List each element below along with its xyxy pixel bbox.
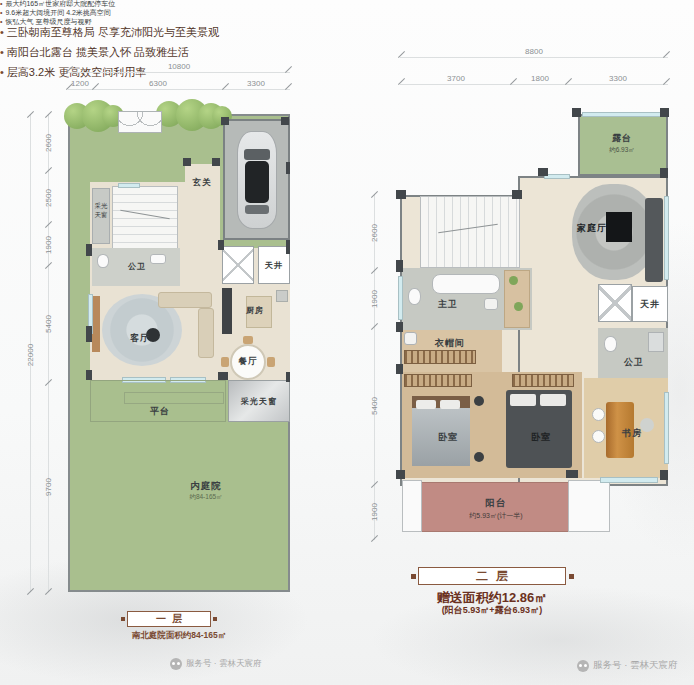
wall-segment (660, 108, 669, 117)
wardrobe-rack (404, 374, 472, 387)
wall-segment (286, 162, 290, 174)
tick (45, 221, 52, 228)
room-label-bedroom-1: 卧室 (438, 431, 458, 444)
f2-title-box: 二层 (418, 567, 566, 585)
tick (285, 83, 292, 90)
pillow (416, 400, 436, 409)
bullet-text: 南阳台北露台 揽美景入怀 品致雅生活 (7, 46, 189, 60)
dim-label: 3300 (609, 74, 627, 83)
room-label-dining: 餐厅 (239, 356, 258, 368)
title-box-dot (569, 574, 574, 579)
window (664, 392, 669, 464)
room-label-bedroom-2: 卧室 (531, 431, 551, 444)
wall-segment (396, 322, 403, 332)
f1-subtitle: 南北庭院面积约84-165㎡ (68, 630, 290, 642)
side-table (474, 452, 484, 462)
f2-dim-height-segments: 2600 1900 5400 1900 (374, 195, 375, 540)
dining-chair (221, 357, 229, 367)
wall-segment (566, 470, 578, 478)
f2-dim-width-segments: 3700 1800 3300 (400, 84, 668, 85)
f1-watermark: 服务号 · 雲林天宸府 (170, 658, 262, 670)
room-label-lightwell-f2: 天井 (640, 298, 660, 311)
wardrobe-rack (404, 350, 476, 364)
bullet-text: 三卧朝南至尊格局 尽享充沛阳光与至美景观 (7, 26, 219, 40)
balcony-area-label: 约5.93㎡(计一半) (469, 511, 522, 521)
tv-icon (606, 212, 632, 242)
dim-label: 8800 (525, 47, 543, 56)
window (582, 112, 664, 117)
chair (640, 418, 654, 432)
window (664, 196, 669, 280)
bullet-item: •9.6米超大阔境开间 4.2米挑高空间 (0, 9, 694, 18)
pillow (540, 394, 566, 406)
bullet-item: •最大约165㎡世家府邸大院配停车位 (0, 0, 694, 9)
planting-bed (124, 392, 224, 404)
balcony-pillar (568, 480, 610, 532)
wall-segment (396, 190, 406, 199)
sofa (198, 308, 214, 358)
room-label-entry: 玄关 (193, 177, 212, 189)
f1-lift-shaft (222, 246, 254, 284)
tick (27, 588, 34, 595)
tick (371, 191, 378, 198)
pillow (510, 394, 536, 406)
kitchen-counter (222, 288, 232, 334)
dim-label: 5400 (370, 397, 379, 415)
sofa (645, 198, 663, 282)
watermark-text: 服务号 · 雲林天宸府 (186, 658, 262, 670)
tick (45, 379, 52, 386)
f2-dim-total-width: 8800 (400, 57, 668, 58)
tick (27, 111, 34, 118)
tick (45, 588, 52, 595)
bullet-dot: • (0, 66, 4, 80)
bullet-dot: • (0, 18, 2, 27)
bullet-dot: • (0, 26, 4, 40)
f1-dim-height-segments: 2600 2500 1900 5400 9700 (48, 115, 49, 592)
tv-cabinet (92, 296, 100, 352)
title-box-dot (213, 617, 217, 621)
wall-segment (512, 190, 522, 199)
wall-segment (218, 372, 228, 380)
sofa (158, 292, 212, 308)
f1-title-box: 一层 (127, 611, 211, 627)
dim-label: 5400 (44, 315, 53, 333)
tick (371, 323, 378, 330)
wall-segment (396, 470, 405, 479)
f1-bullet-list: •最大约165㎡世家府邸大院配停车位 •9.6米超大阔境开间 4.2米挑高空间 … (0, 0, 694, 26)
room-label-skylight-1: 采光 (95, 202, 108, 211)
dim-label: 2500 (44, 189, 53, 207)
dim-label: 22000 (26, 344, 35, 366)
tick (371, 535, 378, 542)
wall-segment (286, 372, 290, 382)
room-label-closet: 衣帽间 (435, 337, 465, 350)
f2-lift-shaft (598, 284, 632, 322)
wall-segment (660, 470, 668, 480)
tick (92, 83, 99, 90)
wall-segment (281, 117, 289, 125)
toilet-icon (408, 288, 421, 305)
bullet-dot: • (0, 0, 2, 9)
shower-icon (648, 332, 664, 352)
bathtub-icon (432, 274, 500, 294)
dim-label: 3300 (247, 79, 265, 88)
car-windshield (244, 149, 270, 160)
dining-chair (243, 336, 253, 344)
f1-dim-total-width: 10800 (68, 72, 290, 73)
car-rear-window (245, 205, 269, 214)
room-label-guest-bath: 公卫 (624, 356, 644, 369)
toilet-icon (604, 336, 617, 352)
courtyard-area-label: 约84-165㎡ (189, 493, 222, 502)
wall-segment (86, 326, 92, 342)
tick (371, 267, 378, 274)
dim-label: 6300 (149, 79, 167, 88)
wall-segment (660, 168, 668, 178)
window (118, 183, 140, 188)
room-label-platform: 平台 (150, 405, 170, 418)
bullet-text: 9.6米超大阔境开间 4.2米挑高空间 (5, 9, 110, 18)
dim-label: 10800 (168, 62, 190, 71)
room-label-bath: 公卫 (128, 261, 146, 272)
wechat-icon (170, 658, 182, 670)
plant-icon (509, 276, 518, 285)
terrace-area-label: 约6.93㎡ (609, 146, 635, 155)
bullet-item: •三卧朝南至尊格局 尽享充沛阳光与至美景观 (0, 26, 694, 40)
dim-label: 1900 (370, 290, 379, 308)
wall-segment (396, 364, 403, 374)
side-table (474, 396, 484, 406)
tick (45, 167, 52, 174)
bullet-dot: • (0, 46, 4, 60)
chair (592, 408, 605, 421)
washer-icon (404, 332, 417, 345)
f1-title: 一层 (156, 613, 188, 624)
room-label-study: 书房 (622, 427, 642, 440)
room-label-kitchen: 厨房 (246, 305, 264, 316)
wardrobe-rack (512, 374, 574, 387)
room-label-lightwell: 天井 (265, 260, 283, 271)
wall-segment (572, 108, 581, 117)
pillow (440, 400, 460, 409)
wall-segment (183, 158, 191, 166)
tick (371, 481, 378, 488)
dim-label: 9700 (44, 478, 53, 496)
room-label-master-bath: 主卫 (438, 298, 458, 311)
bullet-item: •恢弘大气 至尊级尺度与视野 (0, 18, 694, 27)
wall-segment (86, 244, 92, 256)
room-label-skylight-south: 采光天窗 (241, 396, 277, 407)
balcony-pillar (402, 480, 422, 532)
chair (592, 430, 605, 443)
f2-watermark: 服务号 · 雲林天宸府 (577, 659, 677, 672)
room-label-skylight-2: 天窗 (95, 211, 108, 220)
entrance-gate (118, 111, 162, 133)
wall-segment (538, 168, 548, 176)
wall-segment (396, 260, 403, 272)
title-box-dot (411, 574, 416, 579)
dim-label: 2600 (44, 134, 53, 152)
f2-gift-note: (阳台5.93㎡+露台6.93㎡) (380, 604, 604, 617)
f1-dim-width-segments: 1200 6300 3300 (68, 89, 290, 90)
tick (45, 262, 52, 269)
dim-label: 1200 (71, 79, 89, 88)
dim-label: 1900 (44, 236, 53, 254)
room-label-family: 家庭厅 (577, 222, 607, 235)
title-box-dot (121, 617, 125, 621)
dim-label: 1800 (531, 74, 549, 83)
dim-label: 1900 (370, 503, 379, 521)
sink-icon (484, 298, 498, 310)
tick (222, 83, 229, 90)
bullet-text: 最大约165㎡世家府邸大院配停车位 (5, 0, 115, 9)
watermark-text: 服务号 · 雲林天宸府 (593, 659, 677, 672)
window (398, 276, 403, 320)
wall-segment (286, 240, 290, 254)
room-label-courtyard: 内庭院 (190, 480, 222, 493)
wall-segment (218, 240, 224, 250)
car-roof (245, 161, 269, 203)
floorplan-page: 10800 1200 6300 3300 22000 2600 2500 190… (0, 0, 694, 685)
room-label-terrace: 露台 (612, 132, 632, 145)
wall-segment (221, 117, 229, 125)
bullet-dot: • (0, 9, 2, 18)
f2-staircase (420, 196, 520, 268)
window (600, 477, 658, 483)
tick (45, 111, 52, 118)
dim-label: 3700 (447, 74, 465, 83)
f2-title: 二层 (476, 569, 516, 583)
plant-icon (514, 302, 523, 311)
dining-chair (267, 357, 275, 367)
f1-dim-total-height: 22000 (30, 115, 31, 592)
wall-segment (212, 158, 220, 166)
dim-label: 2600 (370, 224, 379, 242)
sink-icon (150, 254, 166, 264)
room-label-living: 客厅 (130, 332, 150, 345)
wechat-icon (577, 660, 589, 672)
room-label-balcony: 阳台 (486, 497, 507, 510)
bullet-text: 恢弘大气 至尊级尺度与视野 (5, 18, 91, 27)
wall-segment (86, 370, 92, 380)
fridge-icon (276, 290, 288, 302)
toilet-icon (97, 254, 109, 268)
